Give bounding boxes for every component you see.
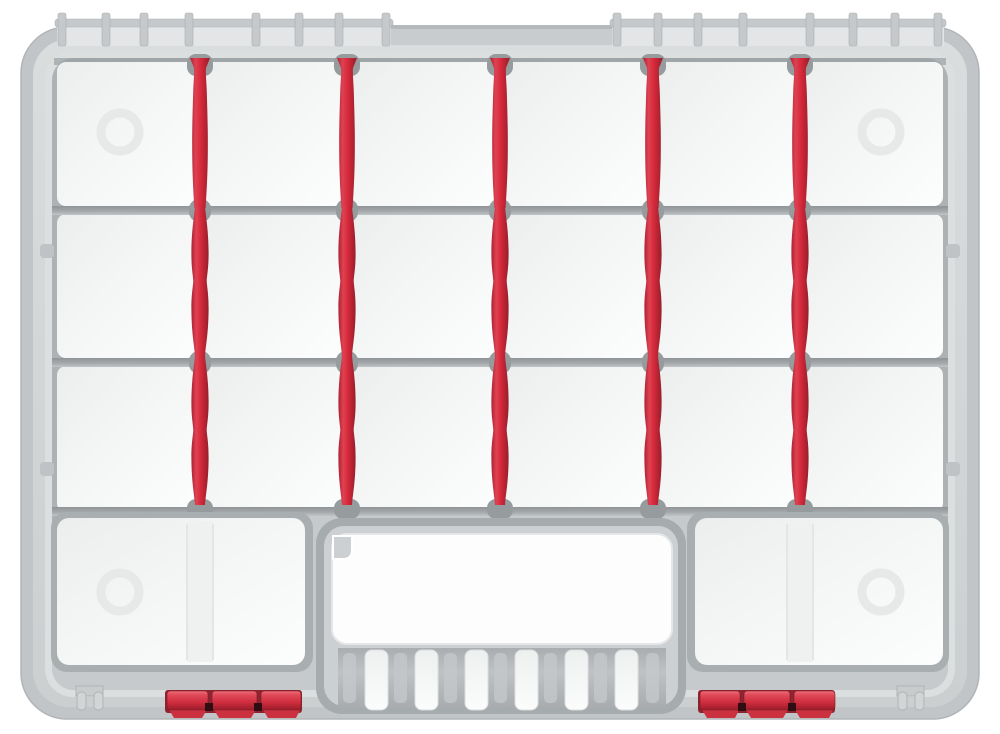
hinge-center-bar-edge <box>391 25 612 29</box>
grip-stripe <box>646 653 659 703</box>
divider-clip <box>338 206 355 356</box>
latch-segment <box>261 691 301 710</box>
divider-clip <box>191 355 208 505</box>
divider-clip <box>791 206 808 356</box>
divider-clip <box>644 206 661 356</box>
grip-slat <box>615 650 638 710</box>
grip-stripe <box>394 653 407 703</box>
compartment-tile <box>504 214 649 358</box>
hinge-post <box>102 13 110 46</box>
compartment-tile <box>804 62 943 206</box>
compartment-tile <box>204 366 343 512</box>
latch-right <box>698 690 835 718</box>
hinge-post <box>335 13 343 46</box>
grip-stripe <box>494 653 507 703</box>
compartment-tile <box>57 214 196 358</box>
latch-gap <box>254 703 262 711</box>
compartment-tile <box>351 62 496 206</box>
carry-handle <box>316 518 686 714</box>
latch-gap <box>788 703 796 711</box>
grip-slat <box>515 650 538 710</box>
grip-slat <box>565 650 588 710</box>
compartment-tile <box>504 62 649 206</box>
divider-clip <box>791 355 808 505</box>
organizer-case-illustration <box>0 0 1000 734</box>
divider-clip <box>338 355 355 505</box>
compartment-tile <box>804 366 943 512</box>
grip-slat <box>465 650 488 710</box>
latch-segment <box>794 691 835 710</box>
grip-stripe <box>544 653 557 703</box>
bin-tile <box>57 518 305 665</box>
hinge-post <box>891 13 899 46</box>
divider-clip <box>491 355 508 505</box>
hinge-rail-right <box>610 13 946 46</box>
grip-stripe <box>343 653 356 703</box>
latch-segment <box>744 691 790 710</box>
hinge-rail-left <box>55 13 393 46</box>
grip-stripe <box>594 653 607 703</box>
divider-clip <box>644 355 661 505</box>
foot-prong <box>898 692 907 710</box>
compartment-tile <box>504 366 649 512</box>
latch-segment <box>700 691 740 710</box>
hinge-post <box>806 13 814 46</box>
foot-prong <box>94 692 103 710</box>
wall-slot-nub <box>40 244 54 258</box>
bottom-bin-right <box>687 512 949 672</box>
hinge-post <box>140 13 148 46</box>
product-image-canvas <box>0 0 1000 734</box>
foot-prong <box>77 692 86 710</box>
hinge-post <box>934 13 942 46</box>
hinge-post <box>849 13 857 46</box>
latch-left <box>165 690 302 718</box>
bottom-bin-left <box>51 512 313 672</box>
hinge-post <box>694 13 702 46</box>
wall-slot-nub <box>946 244 960 258</box>
compartment-tile <box>657 214 796 358</box>
compartment-tile <box>351 214 496 358</box>
handle-corner-notch <box>333 536 352 559</box>
wall-slot-nub <box>40 462 54 476</box>
divider-slot-unused <box>187 521 213 662</box>
compartment-tile <box>204 214 343 358</box>
compartment-tile <box>657 62 796 206</box>
hinge-post <box>613 13 621 46</box>
handle-cutout <box>332 534 672 644</box>
compartment-tile <box>351 366 496 512</box>
hinge-post <box>252 13 260 46</box>
latch-gap <box>738 703 746 711</box>
hinge-post <box>654 13 662 46</box>
bin-tile <box>695 518 943 665</box>
hinge-post <box>185 13 193 46</box>
compartment-tile <box>657 366 796 512</box>
grip-slat <box>365 650 388 710</box>
divider-clip <box>491 206 508 356</box>
hinge-post <box>739 13 747 46</box>
grip-stripe <box>444 653 457 703</box>
compartment-tile <box>804 214 943 358</box>
hinge-post <box>295 13 303 46</box>
compartment-tile <box>204 62 343 206</box>
wall-slot-nub <box>946 462 960 476</box>
grip-slat <box>415 650 438 710</box>
divider-slot-unused <box>787 521 813 662</box>
latch-segment <box>167 691 208 710</box>
divider-clip <box>191 206 208 356</box>
latch-segment <box>212 691 257 710</box>
foot-prong <box>915 692 924 710</box>
hinge-post <box>58 13 66 46</box>
hinge-post <box>382 13 390 46</box>
latch-gap <box>205 703 213 711</box>
compartment-tile <box>57 62 196 206</box>
compartment-tile <box>57 366 196 512</box>
